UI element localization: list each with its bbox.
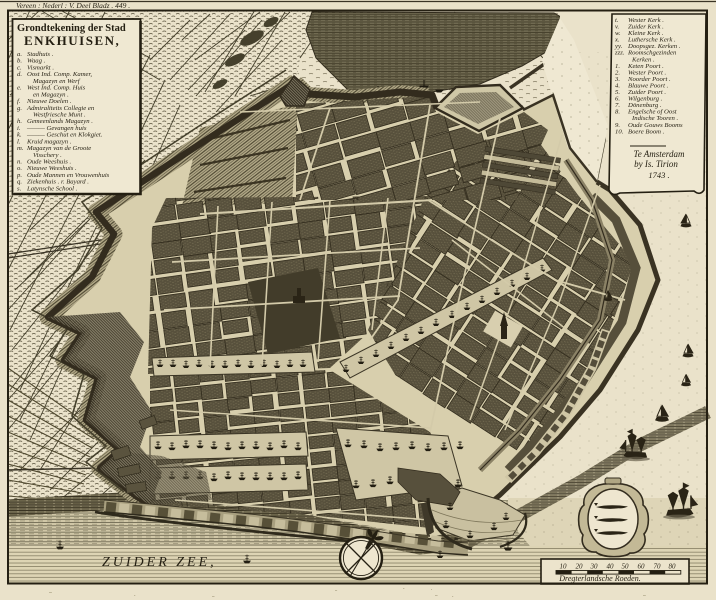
svg-text:Vereen : Nederl : V. Deel Blad: Vereen : Nederl : V. Deel Bladz . 449 .	[16, 1, 130, 10]
svg-text:ENKHUISEN,: ENKHUISEN,	[24, 33, 120, 48]
svg-text:30: 30	[590, 563, 599, 571]
svg-text:8.: 8.	[615, 109, 620, 116]
svg-text:d.: d.	[17, 71, 22, 78]
svg-text:g.: g.	[17, 105, 22, 112]
svg-text:80: 80	[669, 563, 677, 571]
svg-text:10: 10	[560, 563, 568, 571]
svg-text:70: 70	[654, 563, 662, 571]
svg-text:1743 .: 1743 .	[648, 170, 669, 180]
svg-text:e.: e.	[17, 85, 22, 92]
svg-text:by Is. Tirion: by Is. Tirion	[634, 159, 678, 169]
svg-text:s.: s.	[17, 185, 22, 192]
svg-text:Dregterlandsche Roeden.: Dregterlandsche Roeden.	[558, 574, 640, 583]
svg-text:m.: m.	[17, 145, 24, 152]
svg-text:20: 20	[576, 563, 584, 571]
svg-text:50: 50	[622, 563, 630, 571]
svg-text:Te Amsterdam: Te Amsterdam	[634, 149, 685, 159]
svg-text:Latynsche School .: Latynsche School .	[26, 185, 78, 192]
svg-text:ZUIDER ZEE,: ZUIDER ZEE,	[102, 555, 217, 570]
svg-text:40: 40	[607, 563, 615, 571]
svg-text:60: 60	[638, 563, 646, 571]
svg-text:zzz.: zzz.	[614, 50, 625, 57]
svg-text:Boere Boom .: Boere Boom .	[628, 128, 665, 135]
svg-text:10.: 10.	[615, 128, 624, 135]
